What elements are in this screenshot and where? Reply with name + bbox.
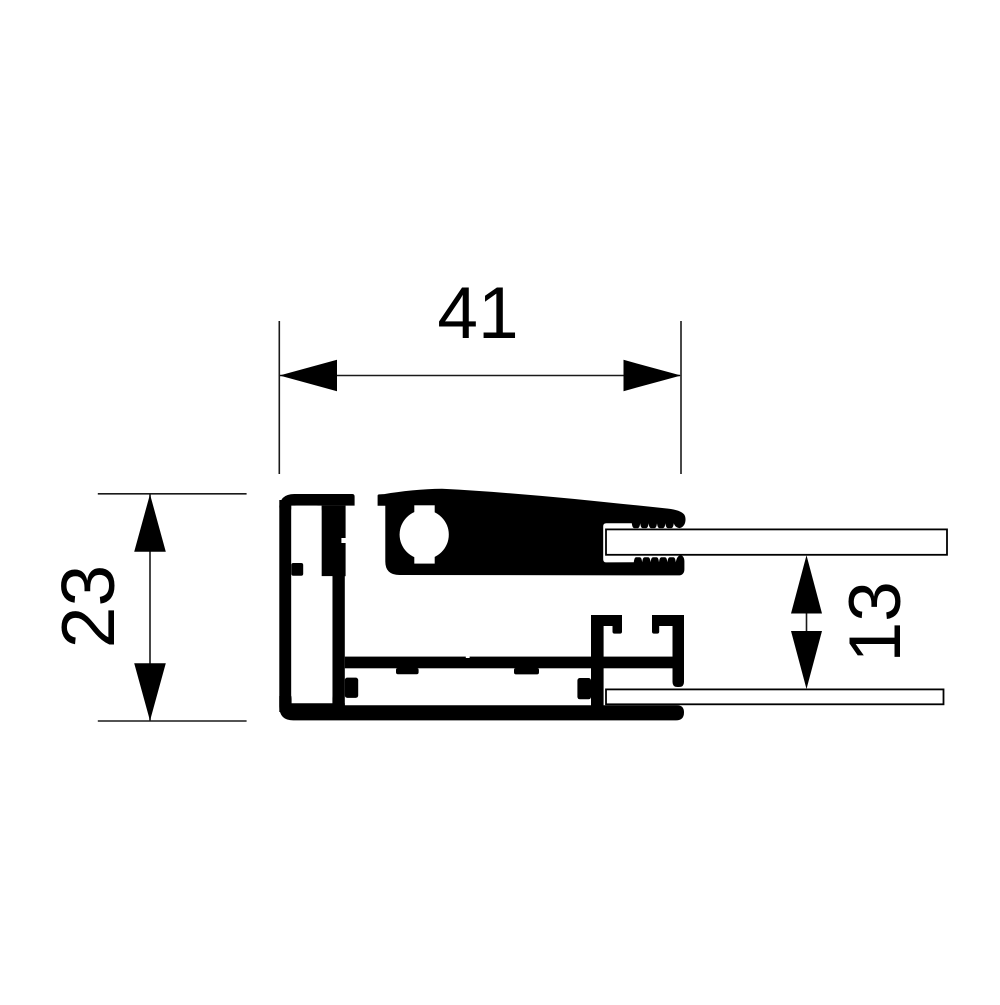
svg-text:13: 13 (835, 581, 916, 662)
svg-text:41: 41 (437, 273, 518, 354)
svg-text:23: 23 (46, 565, 130, 648)
